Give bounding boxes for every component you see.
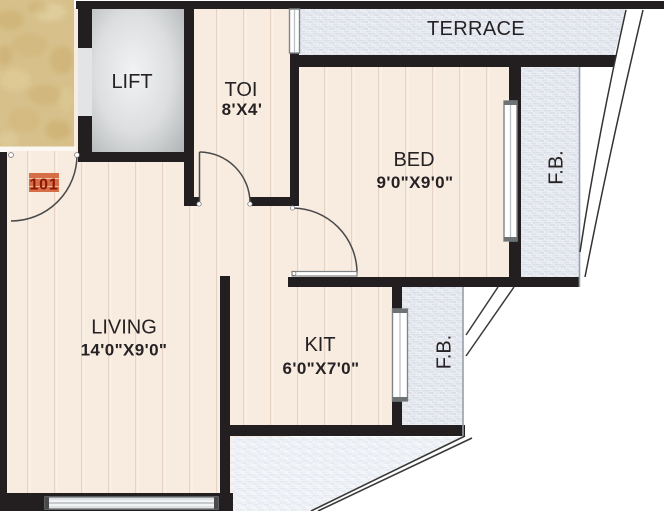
svg-text:LIVING: LIVING [91,317,157,339]
svg-text:101: 101 [29,177,58,194]
svg-text:9'0"X9'0": 9'0"X9'0" [377,173,454,192]
svg-text:BED: BED [393,149,434,171]
svg-text:8'X4': 8'X4' [222,100,263,119]
svg-text:6'0"X7'0": 6'0"X7'0" [283,359,360,378]
svg-text:TERRACE: TERRACE [427,18,525,40]
svg-text:TOI: TOI [225,79,258,101]
svg-text:14'0"X9'0": 14'0"X9'0" [81,341,168,360]
svg-text:LIFT: LIFT [111,71,152,93]
svg-text:F.B.: F.B. [434,335,456,369]
svg-text:KIT: KIT [304,334,335,356]
svg-text:F.B.: F.B. [546,150,568,184]
